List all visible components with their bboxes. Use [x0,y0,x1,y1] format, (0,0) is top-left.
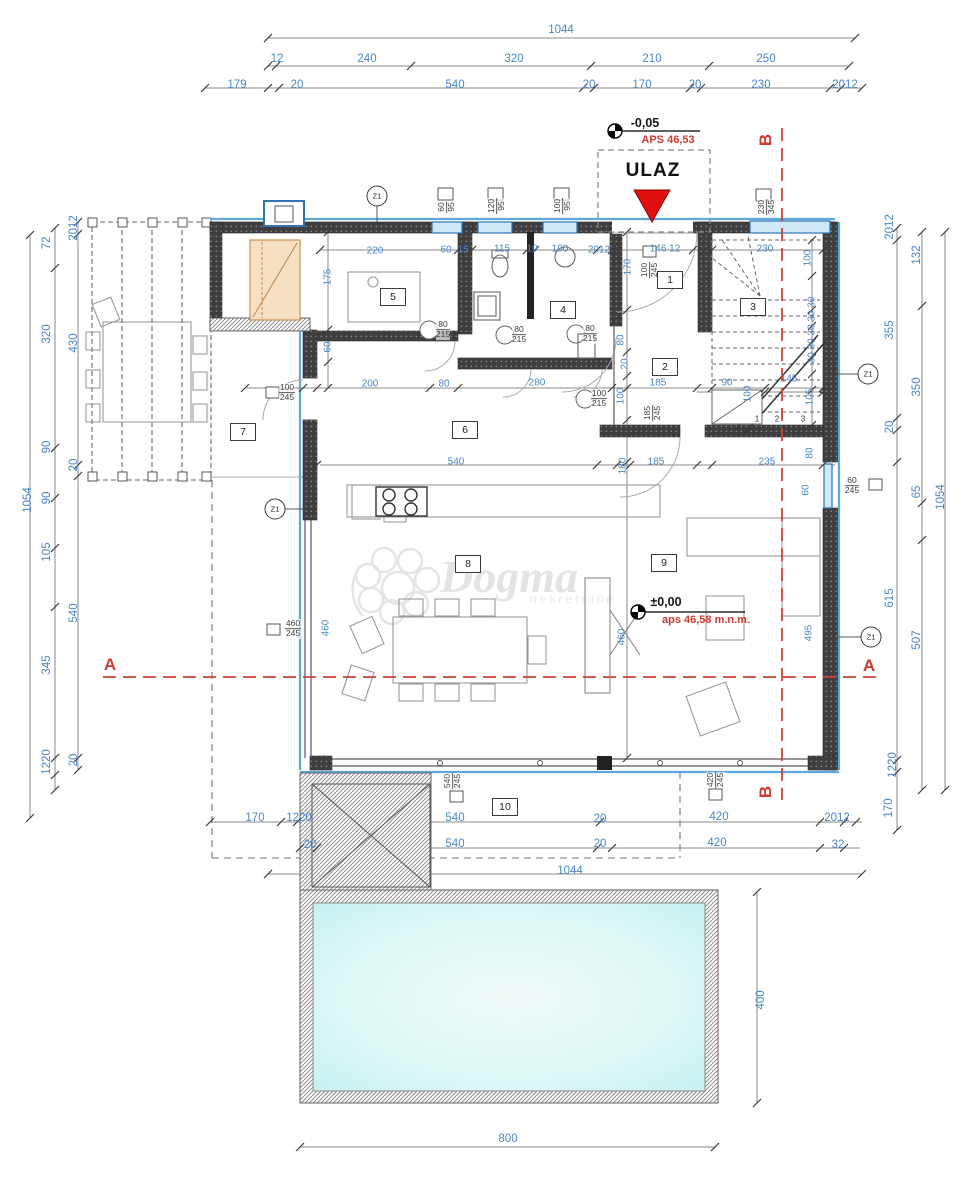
dim-label: 170 [632,79,651,91]
room-number: 2 [652,358,678,376]
dim-label: 20 [291,79,304,91]
dim-label: 800 [498,1133,517,1145]
entrance-label: ULAZ [626,160,681,182]
size-tag: 80215 [583,324,597,344]
size-tag: 80215 [512,325,526,345]
dim-label: 20 [304,839,317,851]
dim-label: 2012 [824,812,850,824]
room-number: 4 [550,301,576,319]
dim-label: aps 46,58 m.n.m. [662,614,750,626]
dim-label: 10 [526,244,537,255]
room-number: 5 [380,288,406,306]
room-number: 10 [492,798,518,816]
dim-label: 540 [445,79,464,91]
dim-label: 3 [801,415,805,424]
dim-label: 90 [41,492,53,505]
dim-label: 175 [323,269,334,286]
dim-label: -0,05 [631,116,660,130]
dim-label: 430 [68,333,80,352]
room-number: 8 [455,555,481,573]
room-number: 6 [452,421,478,439]
dim-label: 170 [245,812,264,824]
dim-label: 4 [820,388,824,397]
dim-label: 200 [362,379,379,390]
dim-label: 2012 [588,245,610,256]
size-tag: 10095 [553,198,573,214]
dim-label: 1044 [557,865,583,877]
dim-label: 105 [805,389,816,406]
dim-label: 420 [709,811,728,823]
dim-label: 507 [911,630,923,649]
dim-label: 1054 [22,487,34,513]
dim-label: 230 [751,79,770,91]
z1-marker: Z1 [265,499,286,520]
dim-label: 32 [832,839,845,851]
dim-label: 1 [755,415,759,424]
dim-label: 20 [583,79,596,91]
dim-label: 1044 [548,24,574,36]
room-number: 7 [230,423,256,441]
dim-label: 20 [68,754,80,767]
dim-label: 20 [594,813,607,825]
dim-label: 280 [529,378,546,389]
room-number: 9 [651,554,677,572]
dim-label: 2012 [884,214,896,240]
dim-label: 355 [884,320,896,339]
dim-label: B [756,786,776,798]
dim-label: 540 [448,457,465,468]
z1-marker: Z1 [367,186,388,207]
dim-label: 1220 [41,749,53,775]
dim-label: 250 [756,53,775,65]
dim-label: 105 [41,542,53,561]
size-tag: 420245 [706,772,726,788]
dim-label: 146 12 [650,244,681,255]
size-tag: 80215 [436,320,450,340]
dim-label: 210 [642,53,661,65]
dim-label: 460 [617,629,628,646]
size-tag: 460245 [285,619,301,639]
dim-label: 20 [620,358,631,369]
dim-label: 320 [504,53,523,65]
dim-label: 100 [743,386,754,403]
dim-label: 220 [367,246,384,257]
dim-label: 132 [911,245,923,264]
dim-label: 65 [911,486,923,499]
dim-label: 235 [759,457,776,468]
dim-label: 2 [775,415,779,424]
dim-label: 90 [41,441,53,454]
dim-label: 15 [457,245,468,256]
dim-label: 1220 [887,752,899,778]
dim-label: 20 [68,459,80,472]
dim-label: 80 [805,447,816,458]
dim-label: 1220 [286,812,312,824]
dim-label: 350 [911,377,923,396]
size-tag: 6095 [437,201,457,212]
dim-label: 100 [552,244,569,255]
dim-label: 80 [616,334,627,345]
dim-label: 100 [616,388,627,405]
dim-label: 20 [594,838,607,850]
dim-label: 60 [323,341,334,352]
dim-label: 2012 [832,79,858,91]
dim-label: 185 [648,457,665,468]
floor-plan: Dogma nekretnine [0,0,978,1200]
dim-label: 20 [884,421,896,434]
dim-label: 615 [884,588,896,607]
dim-label: 100 [803,250,814,267]
dim-label: 12 [271,53,284,65]
dim-label: 320 [41,324,53,343]
room-number: 1 [657,271,683,289]
dim-label: 179 [227,79,246,91]
dim-label: 80 [438,379,449,390]
dim-label: 185 [650,378,667,389]
dim-label: APS 46,53 [641,134,694,146]
dim-label: 345 [41,655,53,674]
size-tag: 60245 [845,476,859,496]
dim-label: 400 [755,990,767,1009]
dim-label: 20 [689,79,702,91]
dim-label: 72 [41,237,53,250]
z1-marker: Z1 [861,627,882,648]
dim-label: 90 [721,378,732,389]
size-tag: 540245 [443,773,463,789]
dim-label: 460 [321,620,332,637]
dim-label: A [863,656,875,676]
annotation-overlay: ULAZ 10441224032021025017920540201702023… [0,0,978,1200]
dim-label: 540 [68,603,80,622]
dim-label: 420 [707,837,726,849]
dim-label: 170 [623,259,634,276]
dim-label: 495 [804,625,815,642]
dim-label: 2012 [68,215,80,241]
dim-label: 180 [618,458,629,475]
dim-label: ±0,00 [650,595,681,609]
dim-label: 540 [445,838,464,850]
dim-label: 240 [357,53,376,65]
z1-marker: Z1 [858,364,879,385]
dim-label: 60 [801,484,812,495]
dim-label: A [104,655,116,675]
size-tag: 100245 [279,383,295,403]
dim-label: 170 [883,798,895,817]
dim-label: B [756,134,776,146]
dim-label: 145 [781,374,798,385]
size-tag: 185245 [643,405,663,421]
room-number: 3 [740,298,766,316]
size-tag: 230345 [757,199,777,215]
dim-label: 230 [757,244,774,255]
dim-label: 30 30 30 30 30 [807,297,818,364]
dim-label: 540 [445,812,464,824]
dim-label: 60 [440,245,451,256]
dim-label: 1054 [935,484,947,510]
dim-label: 115 [494,244,510,255]
size-tag: 12095 [487,198,507,214]
size-tag: 100215 [591,389,607,409]
